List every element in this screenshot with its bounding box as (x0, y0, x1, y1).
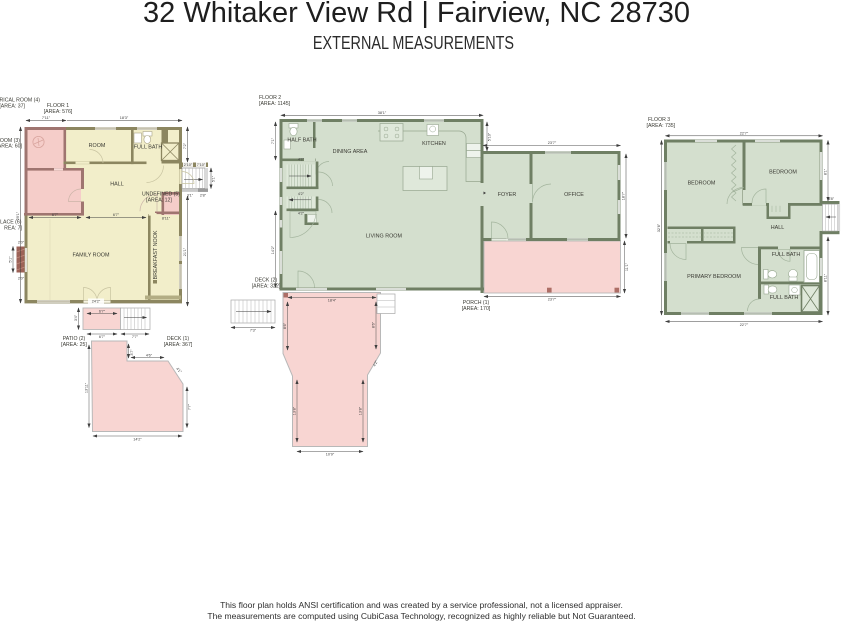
svg-text:5'1": 5'1" (212, 175, 216, 182)
svg-text:[AREA: 12]: [AREA: 12] (146, 197, 172, 203)
svg-text:4'2": 4'2" (298, 192, 305, 196)
svg-text:FOYER: FOYER (498, 192, 517, 198)
svg-text:HALL: HALL (771, 225, 785, 231)
svg-text:13'8": 13'8" (359, 406, 363, 415)
svg-text:3'7": 3'7" (130, 349, 134, 356)
svg-text:OFFICE: OFFICE (564, 192, 584, 198)
svg-text:7'1": 7'1" (271, 137, 275, 144)
svg-text:8'1": 8'1" (824, 168, 828, 175)
svg-text:7'11": 7'11" (42, 116, 51, 120)
svg-text:29'1": 29'1" (16, 211, 20, 220)
svg-text:22'7": 22'7" (740, 131, 749, 135)
svg-text:HALL: HALL (110, 182, 124, 188)
svg-text:8'6": 8'6" (372, 321, 376, 328)
svg-text:2'0": 2'0" (18, 277, 25, 281)
svg-text:2'0": 2'0" (18, 241, 25, 245)
svg-text:[AREA: 367]: [AREA: 367] (164, 342, 193, 348)
svg-text:REA: 7]: REA: 7] (4, 226, 22, 232)
svg-text:4'2": 4'2" (298, 211, 305, 215)
svg-text:LIVING ROOM: LIVING ROOM (366, 234, 402, 240)
svg-text:DINING AREA: DINING AREA (333, 149, 368, 155)
svg-text:FAMILY ROOM: FAMILY ROOM (73, 253, 110, 259)
svg-text:BEDROOM: BEDROOM (688, 181, 716, 187)
svg-text:4'6": 4'6" (146, 354, 153, 358)
svg-text:23'7": 23'7" (548, 298, 557, 302)
svg-text:7'7": 7'7" (132, 335, 139, 339)
svg-text:18'3": 18'3" (120, 116, 129, 120)
svg-text:7'7": 7'7" (188, 403, 192, 410)
svg-text:6'7": 6'7" (113, 213, 120, 217)
svg-text:13'8": 13'8" (293, 406, 297, 415)
svg-text:3'1": 3'1" (187, 194, 194, 198)
svg-text:22'7": 22'7" (740, 323, 749, 327)
svg-text:18'7": 18'7" (622, 191, 626, 200)
svg-text:3'8": 3'8" (828, 197, 835, 201)
svg-text:8'11": 8'11" (824, 273, 828, 282)
svg-text:21'1": 21'1" (183, 247, 187, 256)
svg-text:8'11": 8'11" (162, 217, 171, 221)
svg-text:BREAKFAST NOOK: BREAKFAST NOOK (153, 230, 159, 279)
svg-text:8'6": 8'6" (283, 322, 287, 329)
svg-text:PRIMARY BEDROOM: PRIMARY BEDROOM (687, 274, 741, 280)
svg-text:14'2": 14'2" (271, 245, 275, 254)
svg-text:6'7": 6'7" (99, 310, 106, 314)
svg-text:2'10": 2'10" (184, 163, 193, 167)
svg-text:[AREA: 170]: [AREA: 170] (462, 306, 491, 312)
svg-text:5'10": 5'10" (488, 132, 492, 141)
svg-text:6'7": 6'7" (99, 335, 106, 339)
svg-text:BEDROOM: BEDROOM (769, 170, 797, 176)
svg-text:[AREA: 322]: [AREA: 322] (252, 284, 281, 290)
svg-text:24'2": 24'2" (92, 300, 101, 304)
svg-text:23'7": 23'7" (548, 141, 557, 145)
svg-text:6'7": 6'7" (52, 213, 59, 217)
svg-text:FULL BATH: FULL BATH (770, 295, 799, 301)
svg-text:5'1": 5'1" (9, 256, 13, 263)
svg-text:18'4": 18'4" (328, 299, 337, 303)
svg-text:10'9": 10'9" (326, 453, 335, 457)
svg-text:[AREA: 735]: [AREA: 735] (647, 123, 676, 129)
svg-text:7'2": 7'2" (183, 142, 187, 149)
svg-text:38'1": 38'1" (378, 111, 387, 115)
svg-text:3'4": 3'4" (74, 314, 78, 321)
svg-text:[AREA: 25]: [AREA: 25] (61, 342, 87, 348)
svg-text:[AREA: 576]: [AREA: 576] (44, 109, 73, 115)
svg-text:AREA: 60]: AREA: 60] (0, 144, 23, 150)
svg-text:13'11": 13'11" (85, 382, 89, 393)
svg-text:ROOM: ROOM (89, 143, 106, 149)
svg-text:FULL BATH: FULL BATH (134, 144, 163, 150)
svg-text:FULL BATH: FULL BATH (772, 252, 801, 258)
svg-text:KITCHEN: KITCHEN (422, 141, 446, 147)
svg-text:2'8": 2'8" (200, 194, 207, 198)
svg-text:[AREA: 37]: [AREA: 37] (0, 104, 26, 110)
svg-text:[AREA: 1145]: [AREA: 1145] (259, 101, 291, 107)
svg-text:14'2": 14'2" (133, 438, 142, 442)
svg-text:7'3": 7'3" (250, 329, 257, 333)
svg-text:32'6": 32'6" (657, 223, 661, 232)
svg-text:7'10": 7'10" (197, 163, 206, 167)
svg-text:HALF BATH: HALF BATH (287, 138, 316, 144)
svg-text:4'2": 4'2" (298, 158, 305, 162)
svg-text:11'1": 11'1" (625, 262, 629, 271)
